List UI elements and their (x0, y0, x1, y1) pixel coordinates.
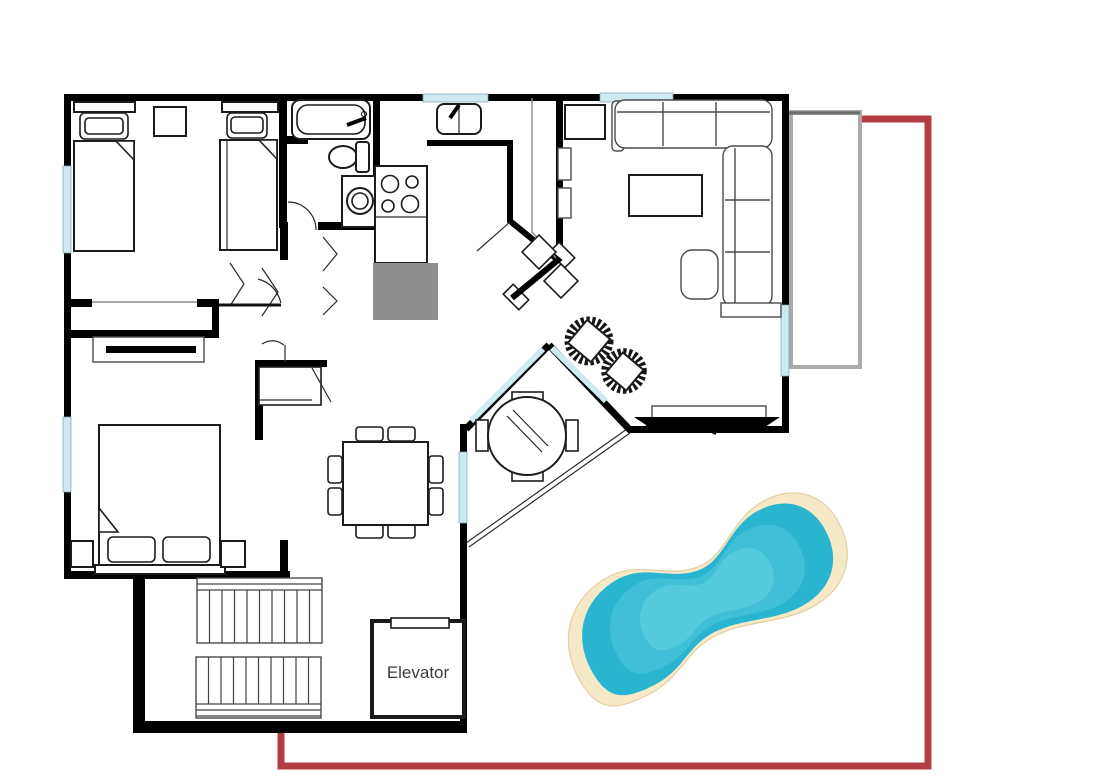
stove-burner-4 (402, 196, 419, 213)
sofa-end-table (721, 303, 781, 317)
window-bedroom1 (63, 166, 71, 253)
dining-chair-1 (356, 427, 383, 441)
dining-chair-7 (429, 456, 443, 483)
barrel-chair-1 (568, 320, 610, 362)
elevator: Elevator (372, 618, 464, 717)
elevator-door (391, 618, 449, 628)
kitchen-block (373, 263, 438, 320)
counter-edge-line (532, 98, 556, 258)
counter-corner-line (477, 222, 510, 251)
window-master (63, 417, 71, 492)
dresser-handle (106, 346, 196, 353)
floor-plan-page: Elevator (0, 0, 1100, 780)
wall-bedroom1-bottom-a (64, 299, 92, 307)
nightstand-left (71, 541, 93, 567)
side-table (565, 105, 605, 139)
balcony (791, 112, 860, 367)
dining-chair-3 (356, 524, 383, 538)
bed-a-pillow-inner (85, 118, 123, 134)
dining-chair-8 (429, 488, 443, 515)
wall-shelf-1 (558, 148, 571, 180)
wall-bedroom1-right (279, 94, 287, 228)
kitchen-peninsula (427, 143, 558, 298)
window-living-right (781, 305, 789, 376)
bathtub-inner (297, 105, 365, 134)
nook-chair-left (476, 420, 488, 451)
tv-screen (634, 417, 780, 427)
master-bedroom-furniture (71, 337, 331, 574)
stove-burner-1 (382, 176, 399, 193)
dining-chair-4 (388, 524, 415, 538)
kitchen-fixtures (373, 98, 578, 320)
stove-burner-2 (406, 176, 418, 188)
window-dining (459, 452, 467, 523)
sofa-right-run (723, 146, 772, 306)
floor-plan-canvas: Elevator (0, 0, 1100, 780)
stove-burner-3 (382, 200, 394, 212)
bedroom1-furniture (74, 102, 278, 251)
toilet-bowl (329, 146, 357, 168)
stairs (196, 578, 322, 718)
wall-shelf-2 (558, 188, 571, 218)
tv-console (652, 406, 766, 418)
wall-living-bottom (628, 426, 789, 433)
wall-closet-top (255, 360, 327, 367)
dining-furniture (328, 427, 443, 538)
bed-b-pillow-inner (231, 117, 263, 133)
nightstand-right (221, 541, 245, 567)
dining-chair-2 (388, 427, 415, 441)
bed-b-mattress (220, 140, 277, 250)
wall-bottom (133, 721, 467, 733)
bed-a-headboard (74, 102, 135, 112)
elevator-label: Elevator (387, 663, 450, 682)
washer-door-inner (352, 193, 368, 209)
barrel-chair-2 (605, 352, 643, 390)
dining-chair-5 (328, 456, 342, 483)
window-kitchen (423, 94, 488, 102)
bed-a-mattress (74, 141, 134, 251)
wall-hall-stub (280, 222, 288, 260)
ottoman (681, 250, 718, 299)
closet (259, 367, 321, 405)
bed-headboard (95, 565, 225, 574)
bed-pillow-right (163, 537, 210, 562)
sofa-top-run (615, 100, 772, 148)
wall-left-lower (133, 575, 145, 733)
wall-master-east-stub (280, 540, 288, 575)
dining-table (343, 442, 428, 525)
bed-b-headboard (222, 102, 278, 112)
nook-chair-right (566, 420, 578, 451)
nightstand (154, 107, 186, 136)
dining-chair-6 (328, 488, 342, 515)
wall-right (782, 94, 789, 432)
bed-pillow-left (108, 537, 155, 562)
coffee-table (629, 175, 702, 216)
toilet-tank (356, 142, 369, 172)
swimming-pool (542, 463, 869, 726)
